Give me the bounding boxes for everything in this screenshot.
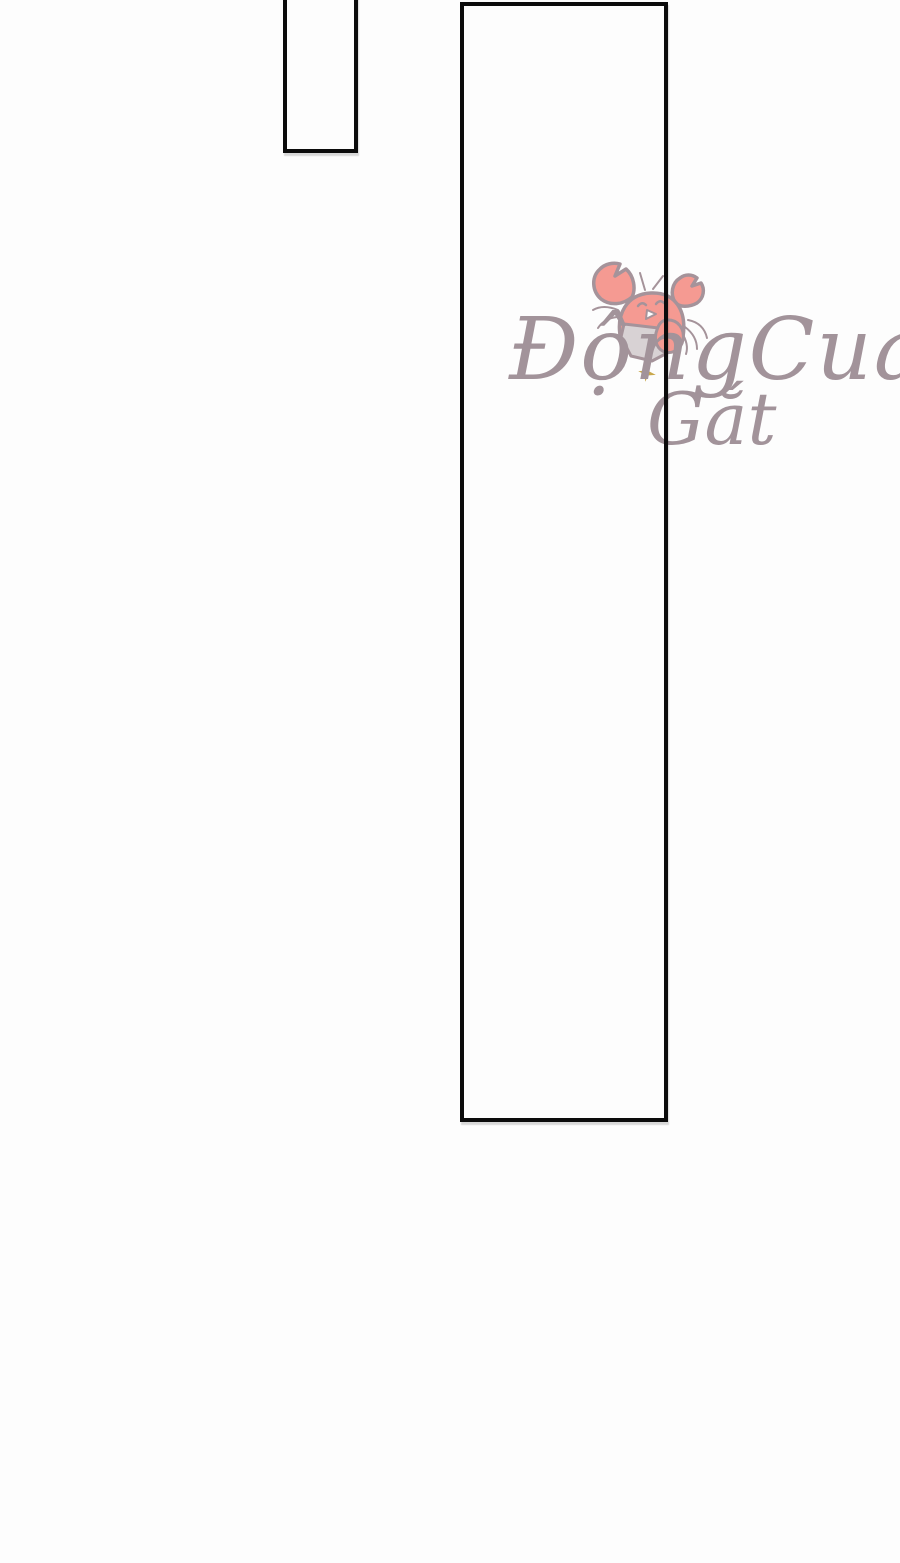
comic-page: ĐộngCua Gắt [0, 0, 900, 1563]
comic-panel-top [283, 0, 358, 153]
comic-panel-main [460, 2, 668, 1122]
